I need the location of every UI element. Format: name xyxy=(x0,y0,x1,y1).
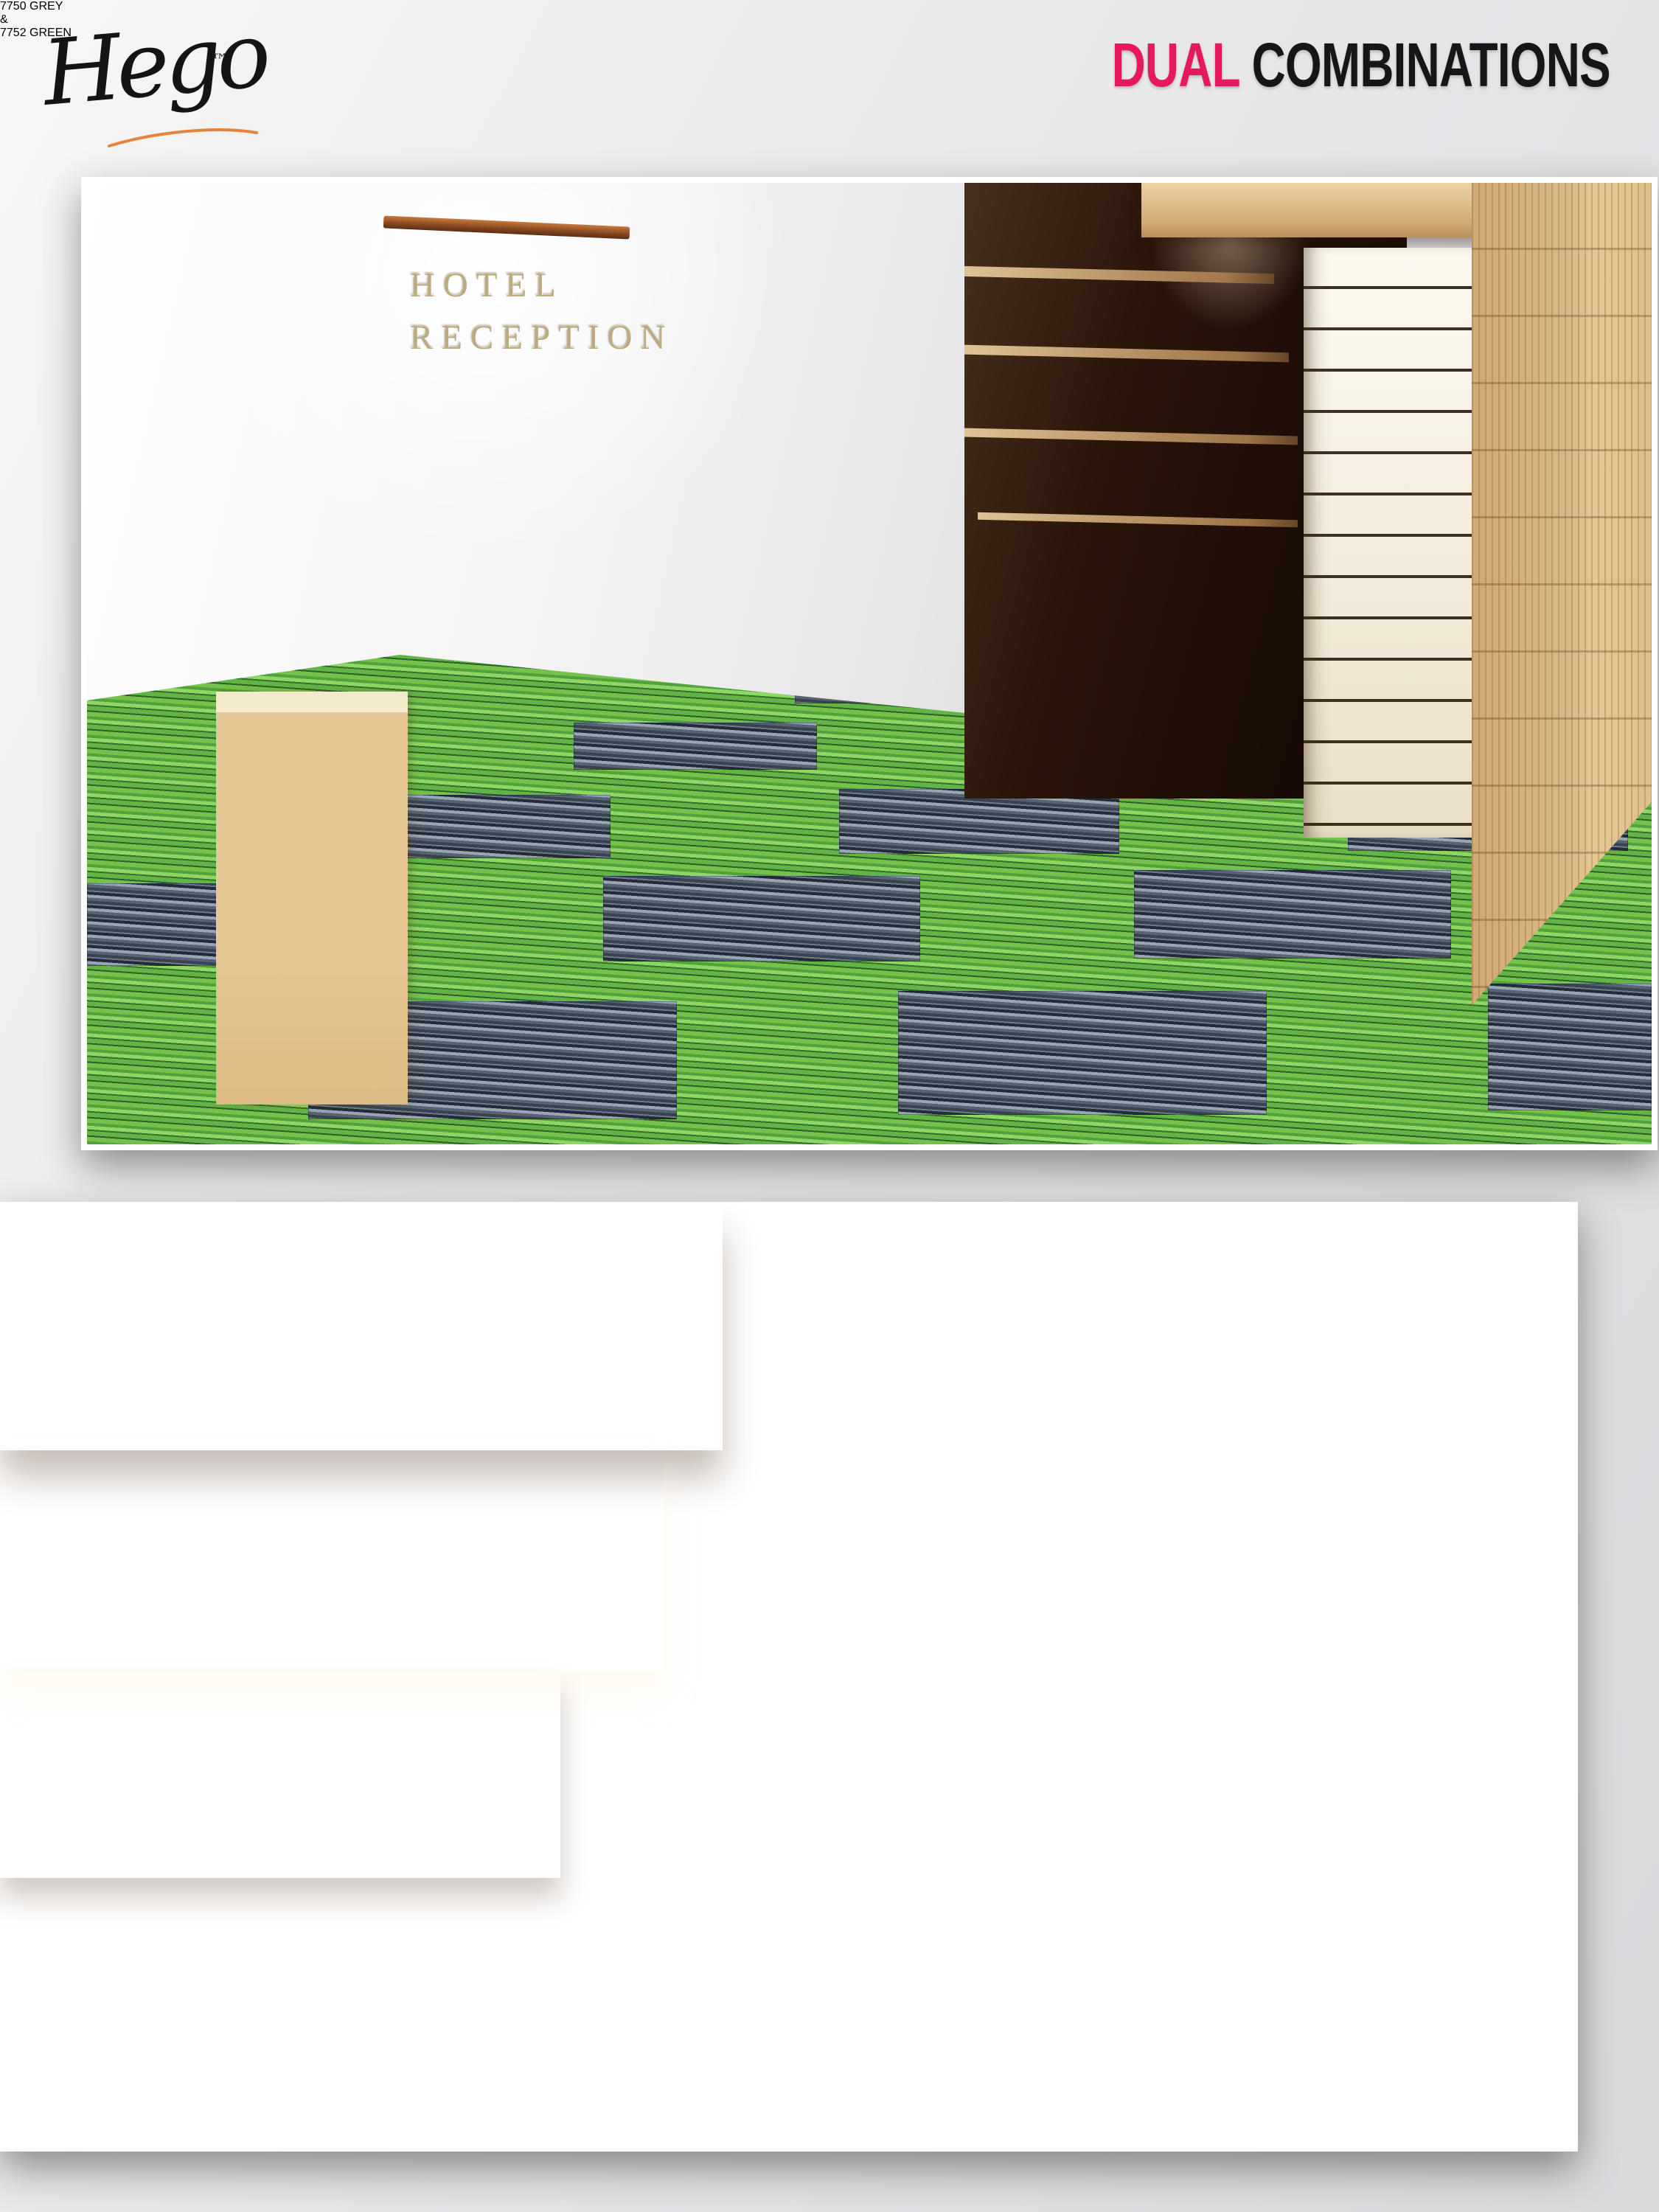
grey-carpet-tile xyxy=(839,789,1119,854)
reception-scene: HOTEL RECEPTION xyxy=(87,183,1652,1144)
trademark-symbol: ™ xyxy=(211,50,229,71)
page-title-rest: COMBINATIONS xyxy=(1252,30,1610,100)
label-line-green: 7752 GREEN xyxy=(0,27,72,40)
concrete-y-column xyxy=(0,2053,144,2146)
airport-scene xyxy=(0,1207,1573,2146)
shelf-highlight xyxy=(978,512,1298,528)
page-title: DUAL COMBINATIONS xyxy=(1112,29,1610,101)
hotel-reception-photo: HOTEL RECEPTION xyxy=(81,177,1658,1150)
product-label-card: 7750 GREY & 7752 GREEN xyxy=(0,0,72,40)
logo-underline-swoosh xyxy=(106,121,261,153)
page-title-accent-word: DUAL xyxy=(1112,30,1239,100)
brand-logo-text: Hego xyxy=(38,2,269,126)
label-line-ampersand: & xyxy=(0,13,72,27)
reception-desk-side xyxy=(216,692,408,1105)
catalog-page: Hego ™ DUAL COMBINATIONS HOTEL RECEPTION xyxy=(0,0,1659,2212)
grey-carpet-tile xyxy=(574,723,817,770)
label-line-grey: 7750 GREY xyxy=(0,0,72,13)
grey-carpet-tile xyxy=(1488,984,1652,1110)
orange-roof-beam xyxy=(0,1935,99,2062)
grey-carpet-tile xyxy=(898,991,1267,1115)
sign-line-2: RECEPTION xyxy=(410,312,674,364)
sign-line-1: HOTEL xyxy=(410,260,674,312)
ceiling-wave xyxy=(0,1207,723,1450)
grey-carpet-tile xyxy=(1134,870,1451,959)
grey-carpet-tile xyxy=(603,876,920,961)
wall-light-glow xyxy=(175,183,839,596)
shelf-highlight xyxy=(964,345,1289,363)
white-slat-panel xyxy=(1304,248,1472,838)
hotel-reception-sign: HOTEL RECEPTION xyxy=(410,260,674,365)
shelf-highlight xyxy=(964,428,1298,445)
ceiling-wave xyxy=(0,1450,664,1672)
airport-terminal-photo xyxy=(0,1202,1578,2152)
